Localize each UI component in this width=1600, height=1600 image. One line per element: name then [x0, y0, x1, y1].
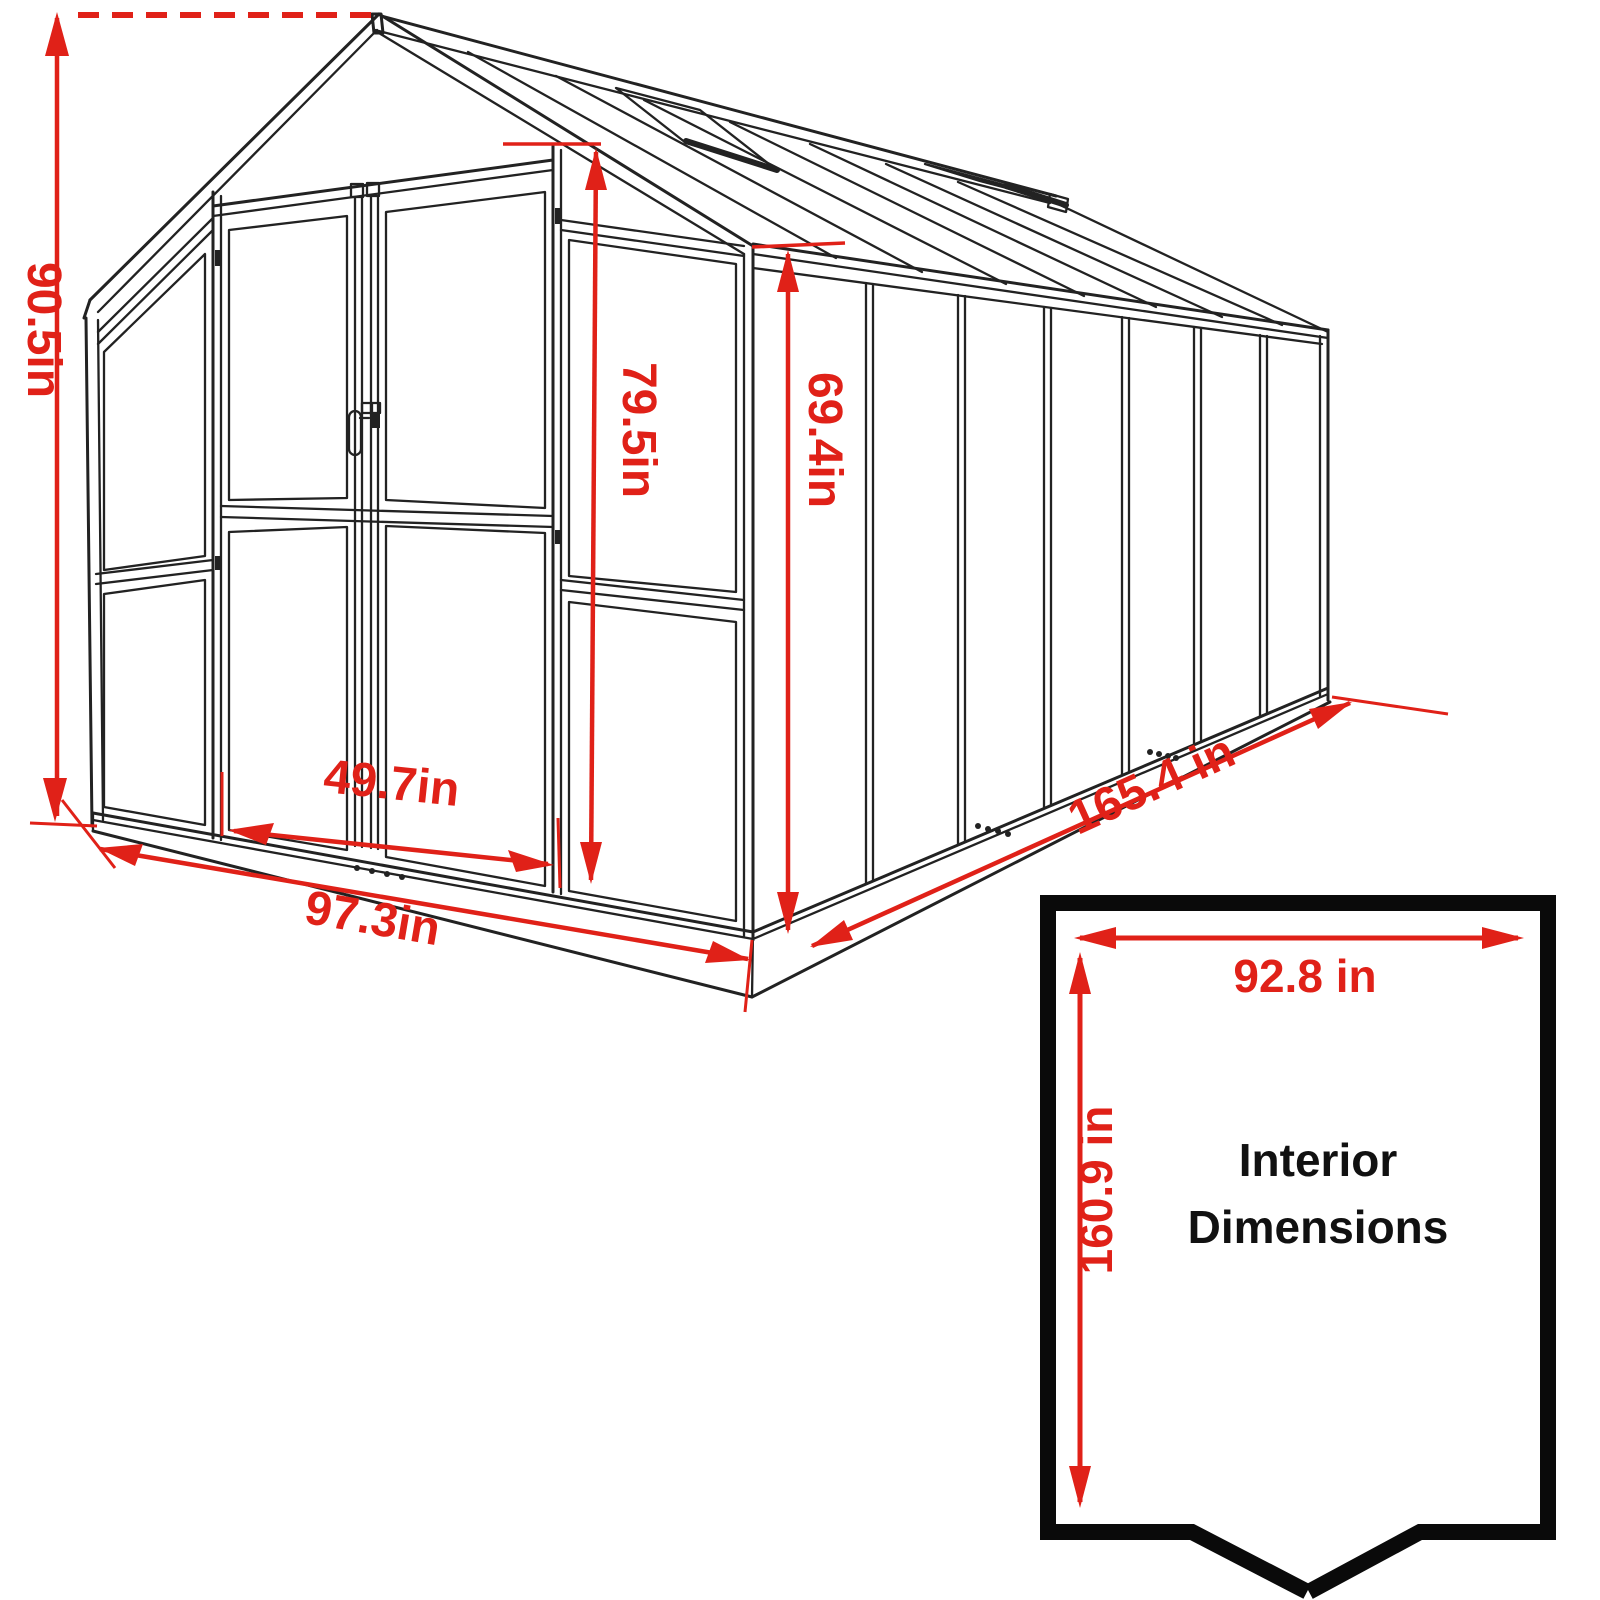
front-right-panel [561, 240, 744, 921]
greenhouse-line-drawing [84, 14, 1330, 997]
diagram-canvas: 90.5in 79.5in 69.4in 49.7in [0, 0, 1600, 1600]
door-height-label: 79.5in [612, 362, 665, 498]
side-length-label: 165.4 in [1060, 724, 1242, 845]
overall-height-label: 90.5in [17, 262, 70, 398]
dimension-overall-height: 90.5in [17, 12, 371, 826]
side-wall [752, 244, 1330, 997]
interior-depth-dimension: 160.9 in [1069, 952, 1122, 1508]
dimension-annotations: 90.5in 79.5in 69.4in 49.7in [17, 12, 1448, 1012]
dimension-wall-height: 69.4in [752, 243, 851, 934]
interior-dimensions-box: 92.8 in 160.9 in Interior Dimensions [1048, 903, 1548, 1588]
interior-caption-line2: Dimensions [1188, 1201, 1449, 1253]
wall-height-label: 69.4in [798, 372, 851, 508]
interior-width-dimension: 92.8 in [1074, 927, 1524, 1002]
interior-depth-label: 160.9 in [1070, 1106, 1122, 1275]
greenhouse-dimension-diagram: 90.5in 79.5in 69.4in 49.7in [0, 0, 1600, 1600]
roof [84, 14, 1328, 332]
dimension-door-width: 49.7in [222, 750, 554, 872]
door-width-label: 49.7in [321, 750, 462, 817]
interior-caption-line1: Interior [1239, 1134, 1398, 1186]
front-left-panel [96, 254, 213, 825]
roof-vent-windows [616, 88, 1066, 205]
front-face [86, 146, 753, 997]
front-width-label: 97.3in [301, 881, 444, 956]
door-handle [349, 403, 380, 455]
interior-width-label: 92.8 in [1233, 950, 1376, 1002]
